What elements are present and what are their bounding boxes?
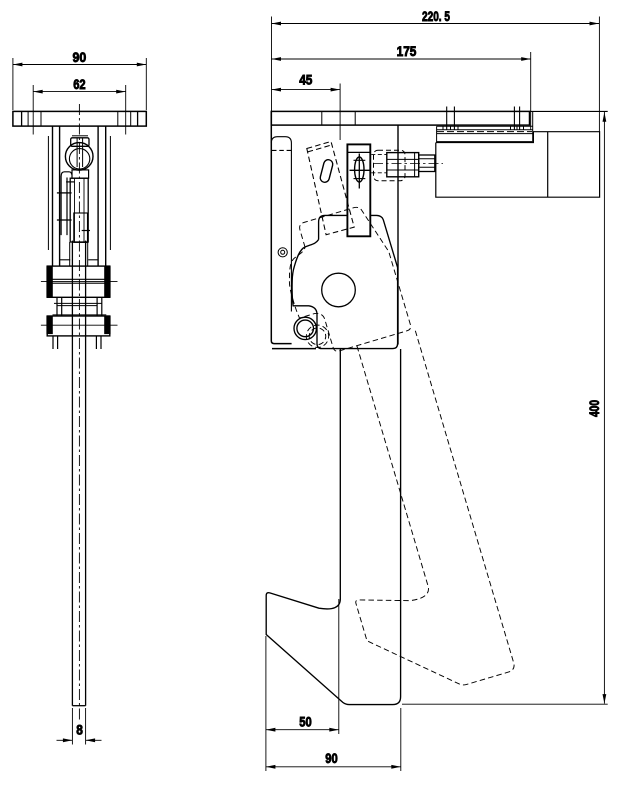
svg-text:175: 175 bbox=[397, 43, 417, 59]
svg-text:220. 5: 220. 5 bbox=[422, 8, 450, 24]
svg-text:400: 400 bbox=[587, 400, 603, 417]
svg-text:62: 62 bbox=[73, 77, 85, 92]
svg-text:50: 50 bbox=[299, 714, 311, 729]
svg-text:45: 45 bbox=[299, 72, 312, 88]
svg-text:90: 90 bbox=[325, 751, 337, 766]
svg-text:8: 8 bbox=[76, 722, 83, 738]
svg-text:90: 90 bbox=[73, 49, 87, 65]
